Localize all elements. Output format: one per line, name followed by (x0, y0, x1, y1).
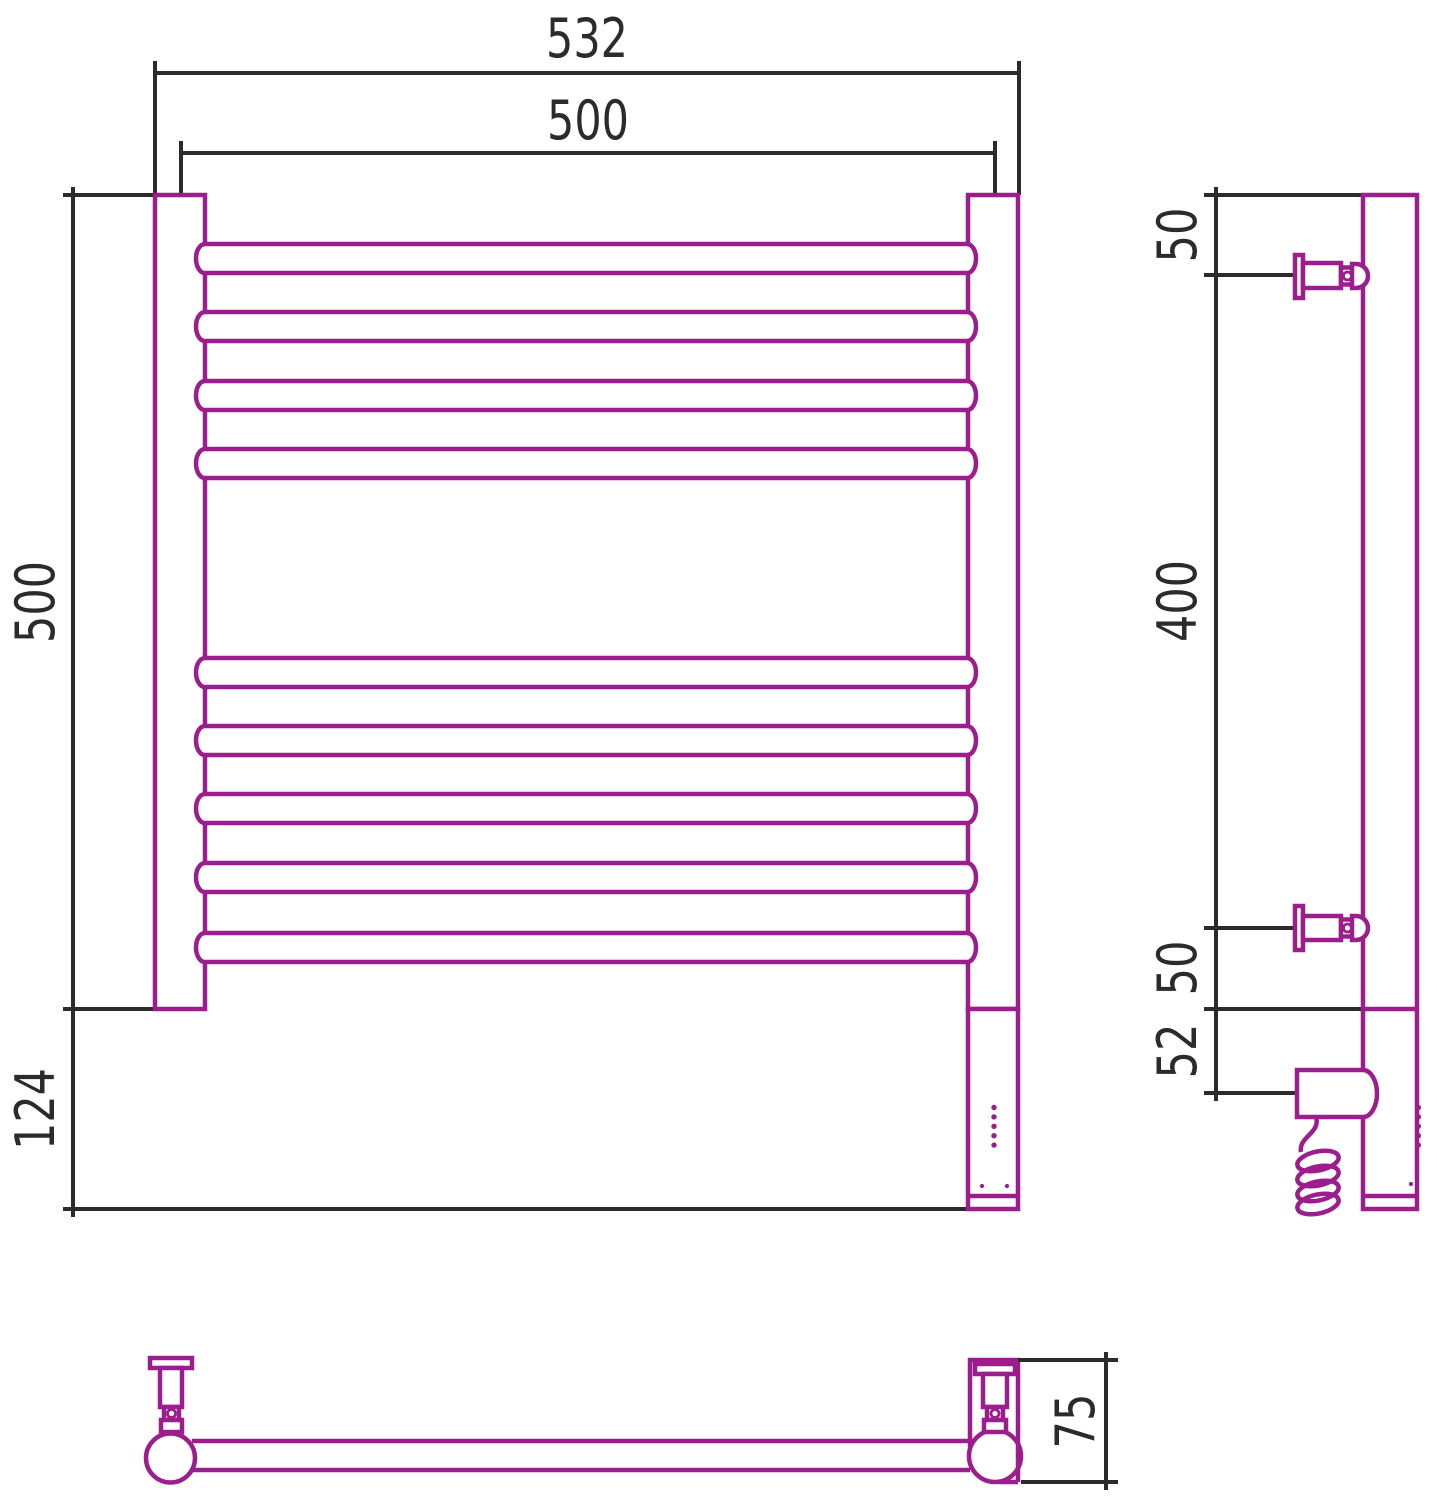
dim-label-lower-section-height: 124 (4, 1068, 67, 1150)
dim-label-mount-centers-width: 500 (547, 89, 629, 152)
led-dot (1416, 1124, 1421, 1129)
dim-side-vertical: 50 400 50 52 (1146, 187, 1363, 1101)
led-dot (991, 1114, 996, 1119)
wall-bracket-top (1295, 255, 1368, 298)
rail (196, 381, 976, 410)
power-cord-coil (1295, 1147, 1340, 1217)
rail (196, 449, 976, 478)
dim-label-bottom-bracket-offset: 50 (1146, 941, 1209, 996)
bracket-body (983, 1374, 1007, 1407)
bracket-screw (1344, 924, 1352, 932)
bracket-cap (1352, 264, 1368, 288)
power-cord-lead (1301, 1117, 1317, 1152)
bracket-screw (991, 1410, 999, 1418)
rails (196, 244, 976, 962)
rail (196, 312, 976, 341)
front-view: 532 500 500 124 (4, 7, 1019, 1217)
bottom-rail-top-view (192, 1441, 970, 1470)
rail (196, 244, 976, 273)
wall-bracket-bottom (1295, 906, 1368, 950)
dim-label-bracket-span: 400 (1146, 560, 1209, 642)
led-dot (1416, 1143, 1421, 1148)
rail (196, 933, 976, 962)
heating-element-side (1297, 1070, 1377, 1117)
bracket-cap (984, 1420, 1006, 1432)
bracket-body (1303, 263, 1341, 288)
led-dot (991, 1133, 996, 1138)
bracket-body (160, 1368, 182, 1407)
dim-label-depth: 75 (1044, 1394, 1107, 1449)
technical-drawing-page: 532 500 500 124 50 400 50 52 (0, 0, 1437, 1500)
housing-dot (980, 1184, 984, 1188)
wall-bracket-left-top-view (150, 1358, 192, 1432)
led-dot (991, 1142, 996, 1147)
led-dot (1416, 1133, 1421, 1138)
left-post-section (146, 1434, 195, 1483)
bracket-cap (161, 1420, 182, 1432)
side-view: 50 400 50 52 (1146, 187, 1421, 1218)
technical-drawing: 532 500 500 124 50 400 50 52 (0, 0, 1437, 1500)
dim-label-top-bracket-offset: 50 (1146, 208, 1209, 263)
dim-depth: 75 (1018, 1352, 1118, 1490)
led-dot (1416, 1105, 1421, 1110)
bracket-screw (1344, 272, 1352, 280)
dim-label-housing-depth: 52 (1146, 1024, 1209, 1079)
rail (196, 658, 976, 687)
rail (196, 863, 976, 892)
dim-side-vertical-lines (1204, 187, 1363, 1101)
rail (196, 794, 976, 823)
side-post (1363, 195, 1417, 1209)
wall-bracket-right-top-view (975, 1364, 1015, 1432)
top-view: 75 (146, 1352, 1118, 1490)
led-dot (991, 1105, 996, 1110)
bracket-body (1303, 916, 1341, 940)
bracket-cap (1352, 916, 1368, 940)
dim-mount-centers-width: 500 (181, 89, 995, 195)
dim-label-overall-width: 532 (546, 7, 628, 70)
led-dot (1416, 1114, 1421, 1119)
dim-label-rail-section-height: 500 (4, 561, 67, 643)
bracket-screw (168, 1410, 176, 1418)
right-post-section (969, 1430, 1021, 1482)
cord-loop (1295, 1190, 1340, 1217)
housing-dot (1005, 1184, 1009, 1188)
led-dot (991, 1124, 996, 1129)
rail (196, 726, 976, 755)
housing-dot-side (1409, 1182, 1413, 1186)
